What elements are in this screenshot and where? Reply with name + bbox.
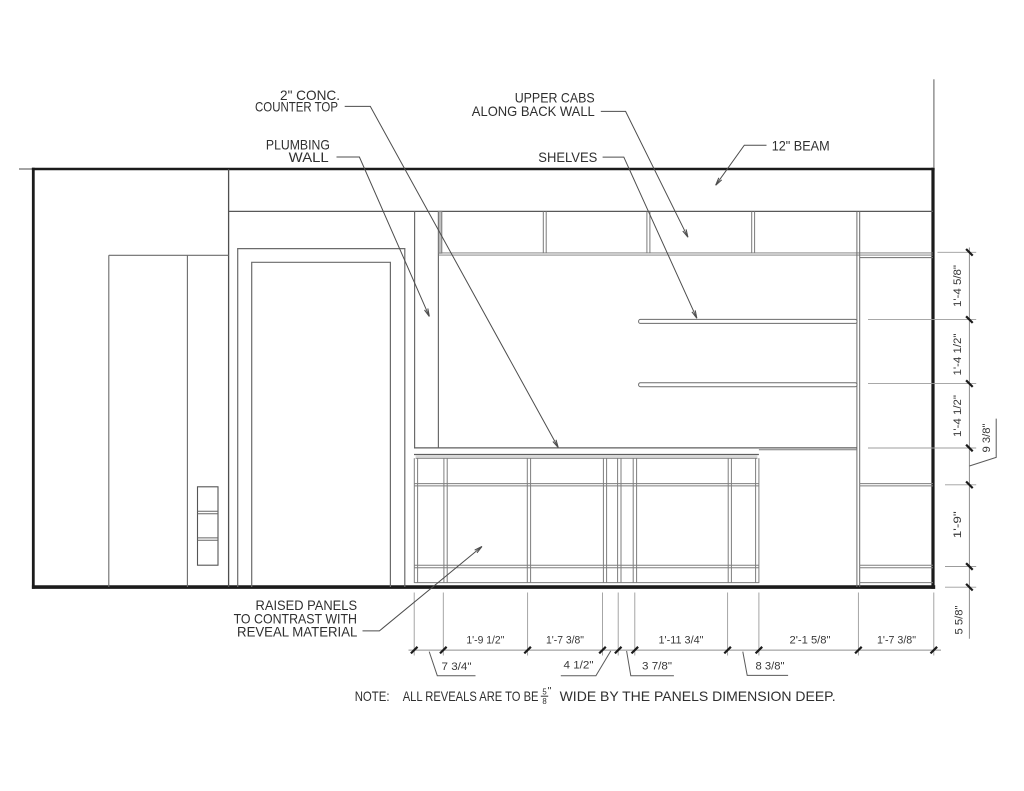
svg-text:WIDE BY THE PANELS DIMENSION D: WIDE BY THE PANELS DIMENSION DEEP.: [560, 689, 836, 704]
svg-text:8: 8: [542, 697, 546, 706]
svg-text:1'-4 5/8": 1'-4 5/8": [952, 265, 964, 307]
svg-text:1'-11 3/4": 1'-11 3/4": [659, 634, 704, 646]
svg-text:2'-1 5/8": 2'-1 5/8": [790, 635, 831, 647]
svg-text:UPPER CABS: UPPER CABS: [515, 90, 595, 105]
svg-text:3 7/8": 3 7/8": [642, 661, 672, 673]
svg-text:8 3/8": 8 3/8": [756, 661, 785, 673]
svg-text:5 5/8": 5 5/8": [954, 606, 966, 635]
svg-text:ALL REVEALS ARE TO BE: ALL REVEALS ARE TO BE: [403, 689, 539, 704]
svg-text:7 3/4": 7 3/4": [442, 661, 472, 673]
svg-text:1'-4 1/2": 1'-4 1/2": [952, 334, 964, 376]
svg-text:4 1/2": 4 1/2": [564, 660, 594, 672]
svg-text:1'-7 3/8": 1'-7 3/8": [546, 634, 584, 646]
svg-text:1'-9 1/2": 1'-9 1/2": [466, 634, 504, 646]
svg-text:1'-4 1/2": 1'-4 1/2": [952, 395, 964, 437]
svg-text:COUNTER TOP: COUNTER TOP: [255, 100, 338, 115]
svg-text:SHELVES: SHELVES: [538, 150, 597, 165]
svg-text:12" BEAM: 12" BEAM: [772, 139, 830, 154]
svg-text:NOTE:: NOTE:: [355, 689, 390, 704]
svg-text:5: 5: [542, 688, 547, 697]
svg-text:1'-7 3/8": 1'-7 3/8": [877, 635, 916, 647]
svg-text:WALL: WALL: [289, 150, 329, 165]
svg-text:1'-9": 1'-9": [952, 511, 964, 538]
svg-text:": ": [548, 685, 552, 697]
svg-text:REVEAL MATERIAL: REVEAL MATERIAL: [237, 625, 358, 640]
svg-text:9 3/8": 9 3/8": [981, 424, 993, 453]
svg-text:ALONG BACK WALL: ALONG BACK WALL: [472, 104, 595, 119]
